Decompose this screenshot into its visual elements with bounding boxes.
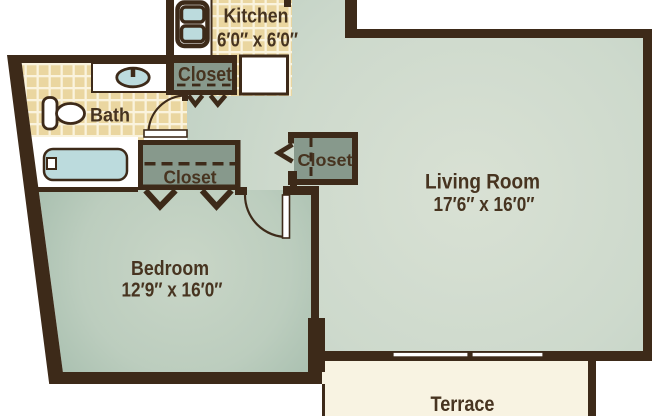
svg-text:Living Room: Living Room [425,170,540,194]
svg-text:6′0″ x 6′0″: 6′0″ x 6′0″ [217,30,298,52]
svg-text:Closet: Closet [298,150,353,170]
svg-text:Bath: Bath [90,106,130,127]
svg-text:Closet: Closet [178,64,232,86]
svg-text:17′6″ x 16′0″: 17′6″ x 16′0″ [434,194,535,216]
svg-text:Kitchen: Kitchen [224,6,289,28]
svg-text:Terrace: Terrace [431,393,495,416]
svg-text:Bedroom: Bedroom [131,258,209,280]
svg-text:Closet: Closet [164,168,217,188]
svg-text:12′9″ x 16′0″: 12′9″ x 16′0″ [122,280,223,302]
